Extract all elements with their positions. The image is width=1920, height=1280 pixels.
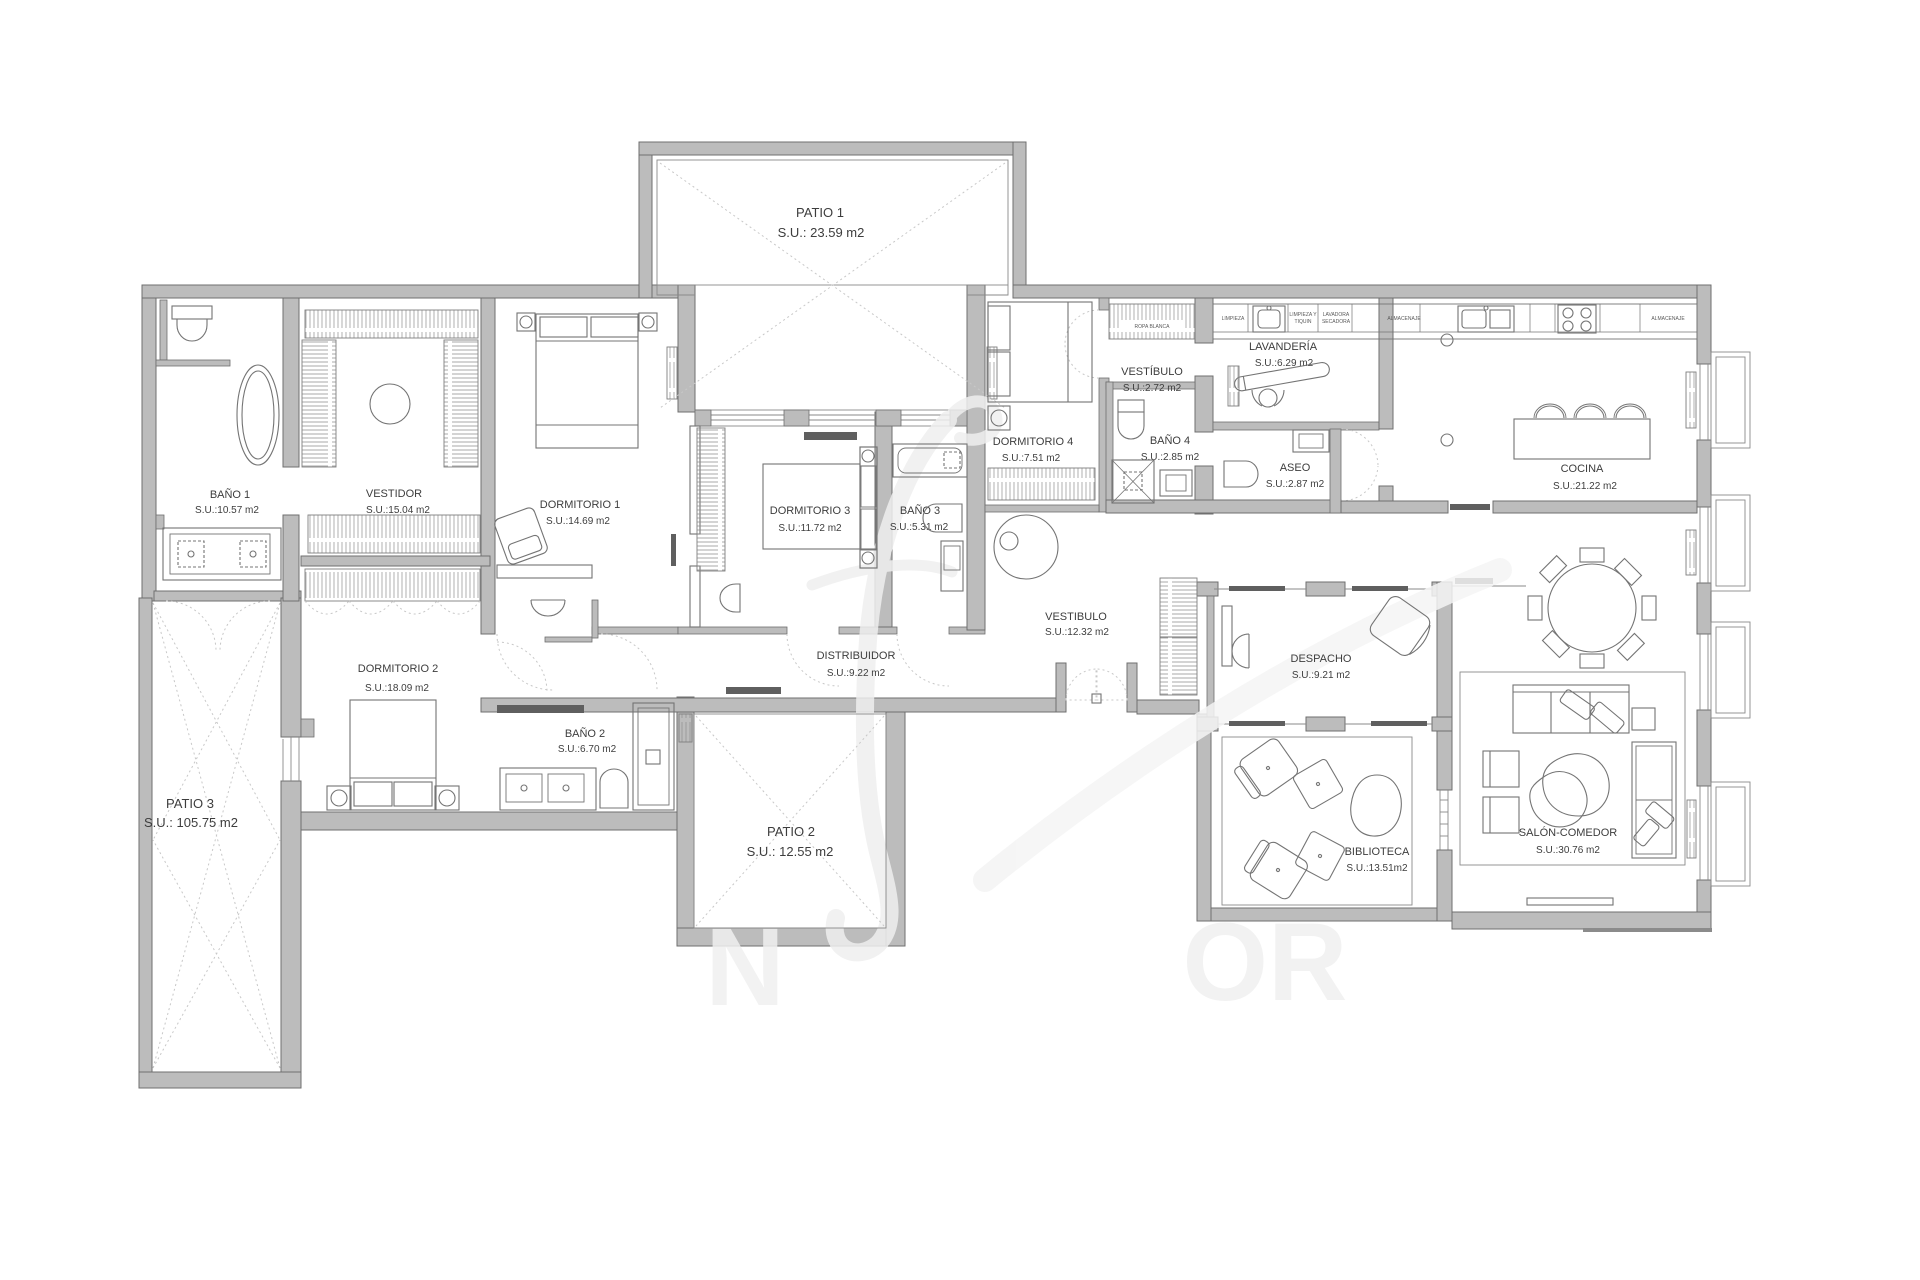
svg-text:S.U.:12.32 m2: S.U.:12.32 m2 [1045, 627, 1109, 638]
svg-text:DISTRIBUIDOR: DISTRIBUIDOR [817, 650, 896, 662]
svg-text:LIMPIEZA: LIMPIEZA [1222, 316, 1245, 322]
svg-text:S.U.: 23.59 m2: S.U.: 23.59 m2 [778, 225, 865, 240]
svg-text:PATIO 2: PATIO 2 [767, 824, 815, 839]
svg-text:S.U.: 105.75 m2: S.U.: 105.75 m2 [144, 815, 238, 830]
svg-text:S.U.: 12.55 m2: S.U.: 12.55 m2 [747, 844, 834, 859]
svg-text:S.U.:5.31 m2: S.U.:5.31 m2 [890, 522, 949, 533]
svg-text:LAVANDERÍA: LAVANDERÍA [1249, 340, 1318, 353]
svg-text:BAÑO 1: BAÑO 1 [210, 488, 250, 501]
svg-text:PATIO 1: PATIO 1 [796, 205, 844, 220]
svg-text:S.U.:2.72 m2: S.U.:2.72 m2 [1123, 383, 1182, 394]
svg-text:S.U.:13.51m2: S.U.:13.51m2 [1346, 863, 1408, 874]
svg-text:BAÑO 3: BAÑO 3 [900, 504, 940, 517]
svg-text:VESTIBULO: VESTIBULO [1045, 611, 1107, 623]
svg-text:SALÓN-COMEDOR: SALÓN-COMEDOR [1519, 826, 1617, 839]
svg-text:TIQUIN: TIQUIN [1295, 319, 1312, 325]
svg-text:BAÑO 2: BAÑO 2 [565, 727, 605, 740]
svg-text:S.U.:9.21 m2: S.U.:9.21 m2 [1292, 670, 1351, 681]
svg-text:SECADORA: SECADORA [1322, 319, 1351, 325]
svg-text:ALMACENAJE: ALMACENAJE [1387, 316, 1421, 322]
svg-text:OR: OR [1183, 901, 1348, 1024]
svg-text:ALMACENAJE: ALMACENAJE [1651, 316, 1685, 322]
svg-text:N: N [705, 906, 784, 1029]
svg-text:DORMITORIO 1: DORMITORIO 1 [540, 499, 620, 511]
svg-text:PATIO 3: PATIO 3 [166, 796, 214, 811]
svg-text:S.U.:18.09 m2: S.U.:18.09 m2 [365, 683, 429, 694]
svg-text:DORMITORIO 3: DORMITORIO 3 [770, 505, 850, 517]
svg-text:S.U.:6.70 m2: S.U.:6.70 m2 [558, 744, 617, 755]
svg-text:VESTIDOR: VESTIDOR [366, 488, 422, 500]
svg-text:VESTÍBULO: VESTÍBULO [1121, 365, 1183, 378]
svg-text:LIMPIEZA Y: LIMPIEZA Y [1289, 312, 1317, 318]
svg-text:LAVADORA: LAVADORA [1323, 312, 1350, 318]
svg-text:S.U.:2.87 m2: S.U.:2.87 m2 [1266, 479, 1325, 490]
svg-text:COCINA: COCINA [1561, 463, 1604, 475]
svg-text:S.U.:15.04 m2: S.U.:15.04 m2 [366, 505, 430, 516]
svg-text:S.U.:7.51 m2: S.U.:7.51 m2 [1002, 453, 1061, 464]
svg-text:DESPACHO: DESPACHO [1291, 653, 1352, 665]
svg-text:S.U.:30.76 m2: S.U.:30.76 m2 [1536, 845, 1600, 856]
svg-text:ASEO: ASEO [1280, 462, 1311, 474]
svg-text:BIBLIOTECA: BIBLIOTECA [1345, 846, 1410, 858]
svg-text:ROPA BLANCA: ROPA BLANCA [1135, 324, 1171, 330]
svg-text:S.U.:2.85 m2: S.U.:2.85 m2 [1141, 452, 1200, 463]
svg-text:S.U.:6.29 m2: S.U.:6.29 m2 [1255, 358, 1314, 369]
svg-text:DORMITORIO 4: DORMITORIO 4 [993, 436, 1073, 448]
svg-text:S.U.:10.57 m2: S.U.:10.57 m2 [195, 505, 259, 516]
svg-text:S.U.:14.69 m2: S.U.:14.69 m2 [546, 516, 610, 527]
svg-text:S.U.:11.72 m2: S.U.:11.72 m2 [778, 523, 842, 534]
svg-text:S.U.:9.22 m2: S.U.:9.22 m2 [827, 668, 886, 679]
svg-text:S.U.:21.22 m2: S.U.:21.22 m2 [1553, 481, 1617, 492]
svg-text:BAÑO 4: BAÑO 4 [1150, 434, 1190, 447]
svg-text:DORMITORIO 2: DORMITORIO 2 [358, 663, 438, 675]
